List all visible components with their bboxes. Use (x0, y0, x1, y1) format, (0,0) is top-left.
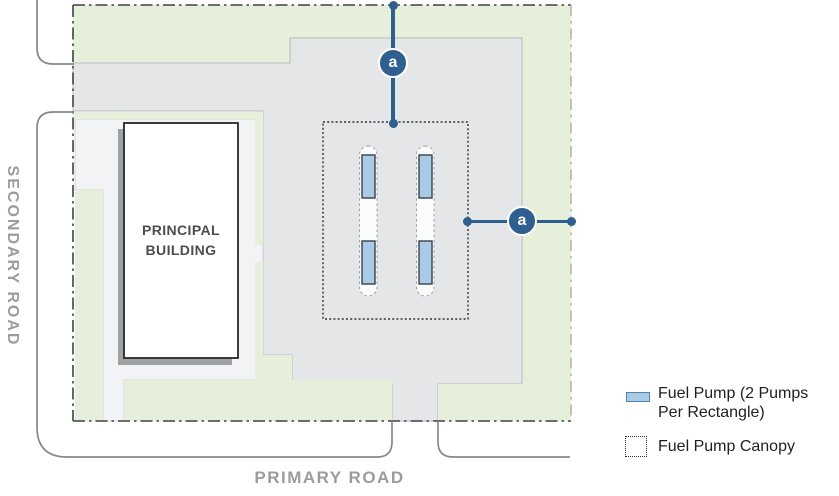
landscape-bottom-step (263, 355, 292, 421)
principal-building-label: PRINCIPAL BUILDING (124, 123, 238, 358)
fuel-pump-bottom-right (419, 241, 432, 284)
section-marker-right-canopy-dot (463, 217, 472, 226)
secondary-road-edge-upper (37, 0, 74, 64)
landscape-left-strip (75, 190, 103, 421)
section-marker-right-end-dot (567, 217, 576, 226)
primary-road-label: PRIMARY ROAD (227, 468, 432, 488)
section-marker-a-right: a (507, 206, 537, 236)
landscape-building-right-upper (255, 119, 263, 245)
section-marker-a-right-label: a (518, 213, 527, 229)
secondary-road-label: SECONDARY ROAD (1, 161, 21, 351)
landscape-bottom-right (438, 384, 522, 421)
fuel-pump-bottom-left (362, 241, 375, 284)
fuel-pump-swatch (626, 392, 650, 402)
section-marker-top-canopy-dot (389, 119, 398, 128)
fuel-pump-top-right (419, 155, 432, 198)
landscape-band-above-walkway (73, 112, 263, 119)
legend-fuel-pump-label: Fuel Pump (2 Pumps Per Rectangle) (658, 384, 839, 422)
section-marker-top-end-dot (389, 1, 398, 10)
site-plan-canvas: PRINCIPAL BUILDING SECONDARY ROAD PRIMAR… (0, 0, 839, 496)
legend-fuel-pump-canopy-label: Fuel Pump Canopy (658, 437, 839, 456)
section-marker-a-top: a (378, 48, 408, 78)
section-marker-a-top-label: a (389, 55, 398, 71)
landscape-building-right-lower (255, 262, 263, 380)
primary-road-edge-east (438, 421, 570, 457)
landscape-bottom-band (124, 380, 392, 421)
fuel-pump-top-left (362, 155, 375, 198)
fuel-pump-canopy-swatch (625, 436, 647, 457)
